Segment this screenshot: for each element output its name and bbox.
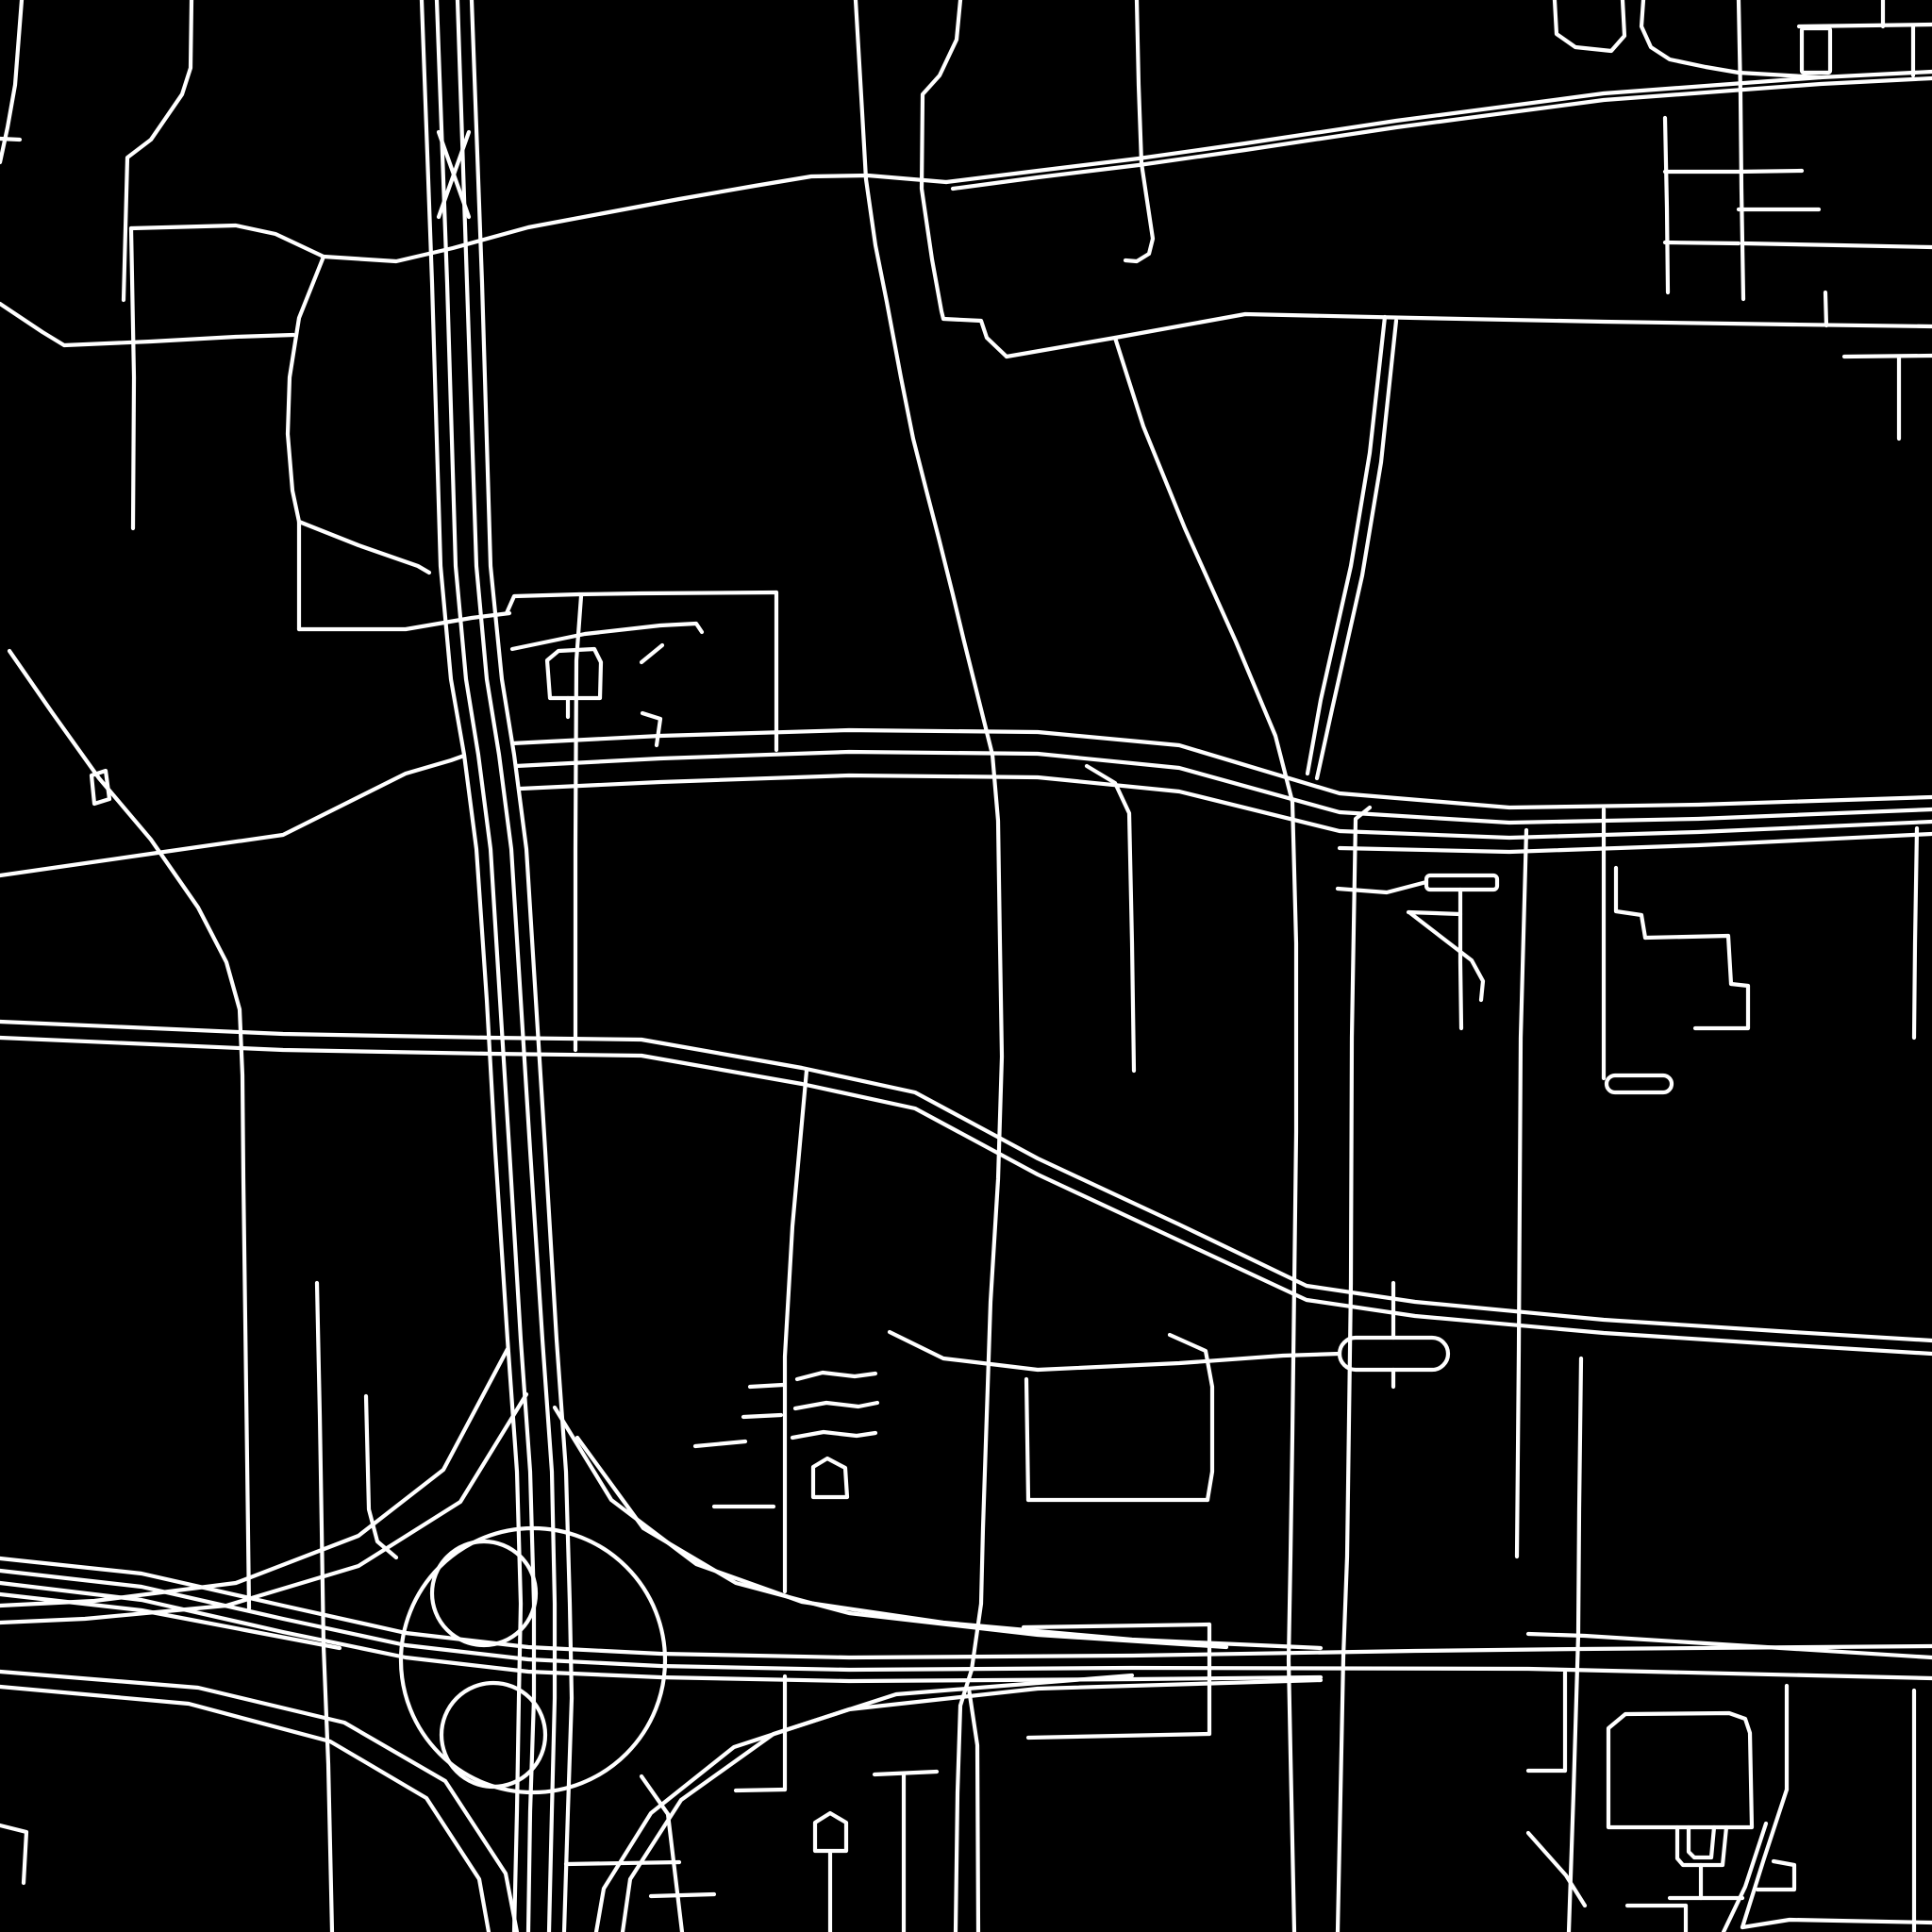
map-root xyxy=(0,0,1932,1932)
road-mid-connector-road xyxy=(579,592,776,594)
map-background xyxy=(0,0,1932,1932)
road-bottom-stub xyxy=(651,1894,714,1896)
road-cluster-road-2 xyxy=(1408,912,1460,914)
road-stub-street-2 xyxy=(743,1415,781,1417)
road-l-road-horiz xyxy=(736,1790,785,1790)
road-block-e-left-edge xyxy=(1026,1379,1028,1500)
road-stub-street-1 xyxy=(750,1385,783,1387)
map-canvas[interactable] xyxy=(0,0,1932,1932)
road-block-f-top xyxy=(1024,1624,1209,1627)
road-tl-tick xyxy=(0,139,20,140)
road-ne-ladder-rung-1 xyxy=(1665,171,1802,172)
road-cluster-vert xyxy=(1460,890,1461,1028)
road-ne-ladder-rung-3 xyxy=(1665,242,1739,243)
road-ne-L-horiz xyxy=(1844,356,1932,357)
road-ne-ladder-stub xyxy=(1825,292,1826,325)
road-interchange-east-stub xyxy=(566,1862,679,1864)
